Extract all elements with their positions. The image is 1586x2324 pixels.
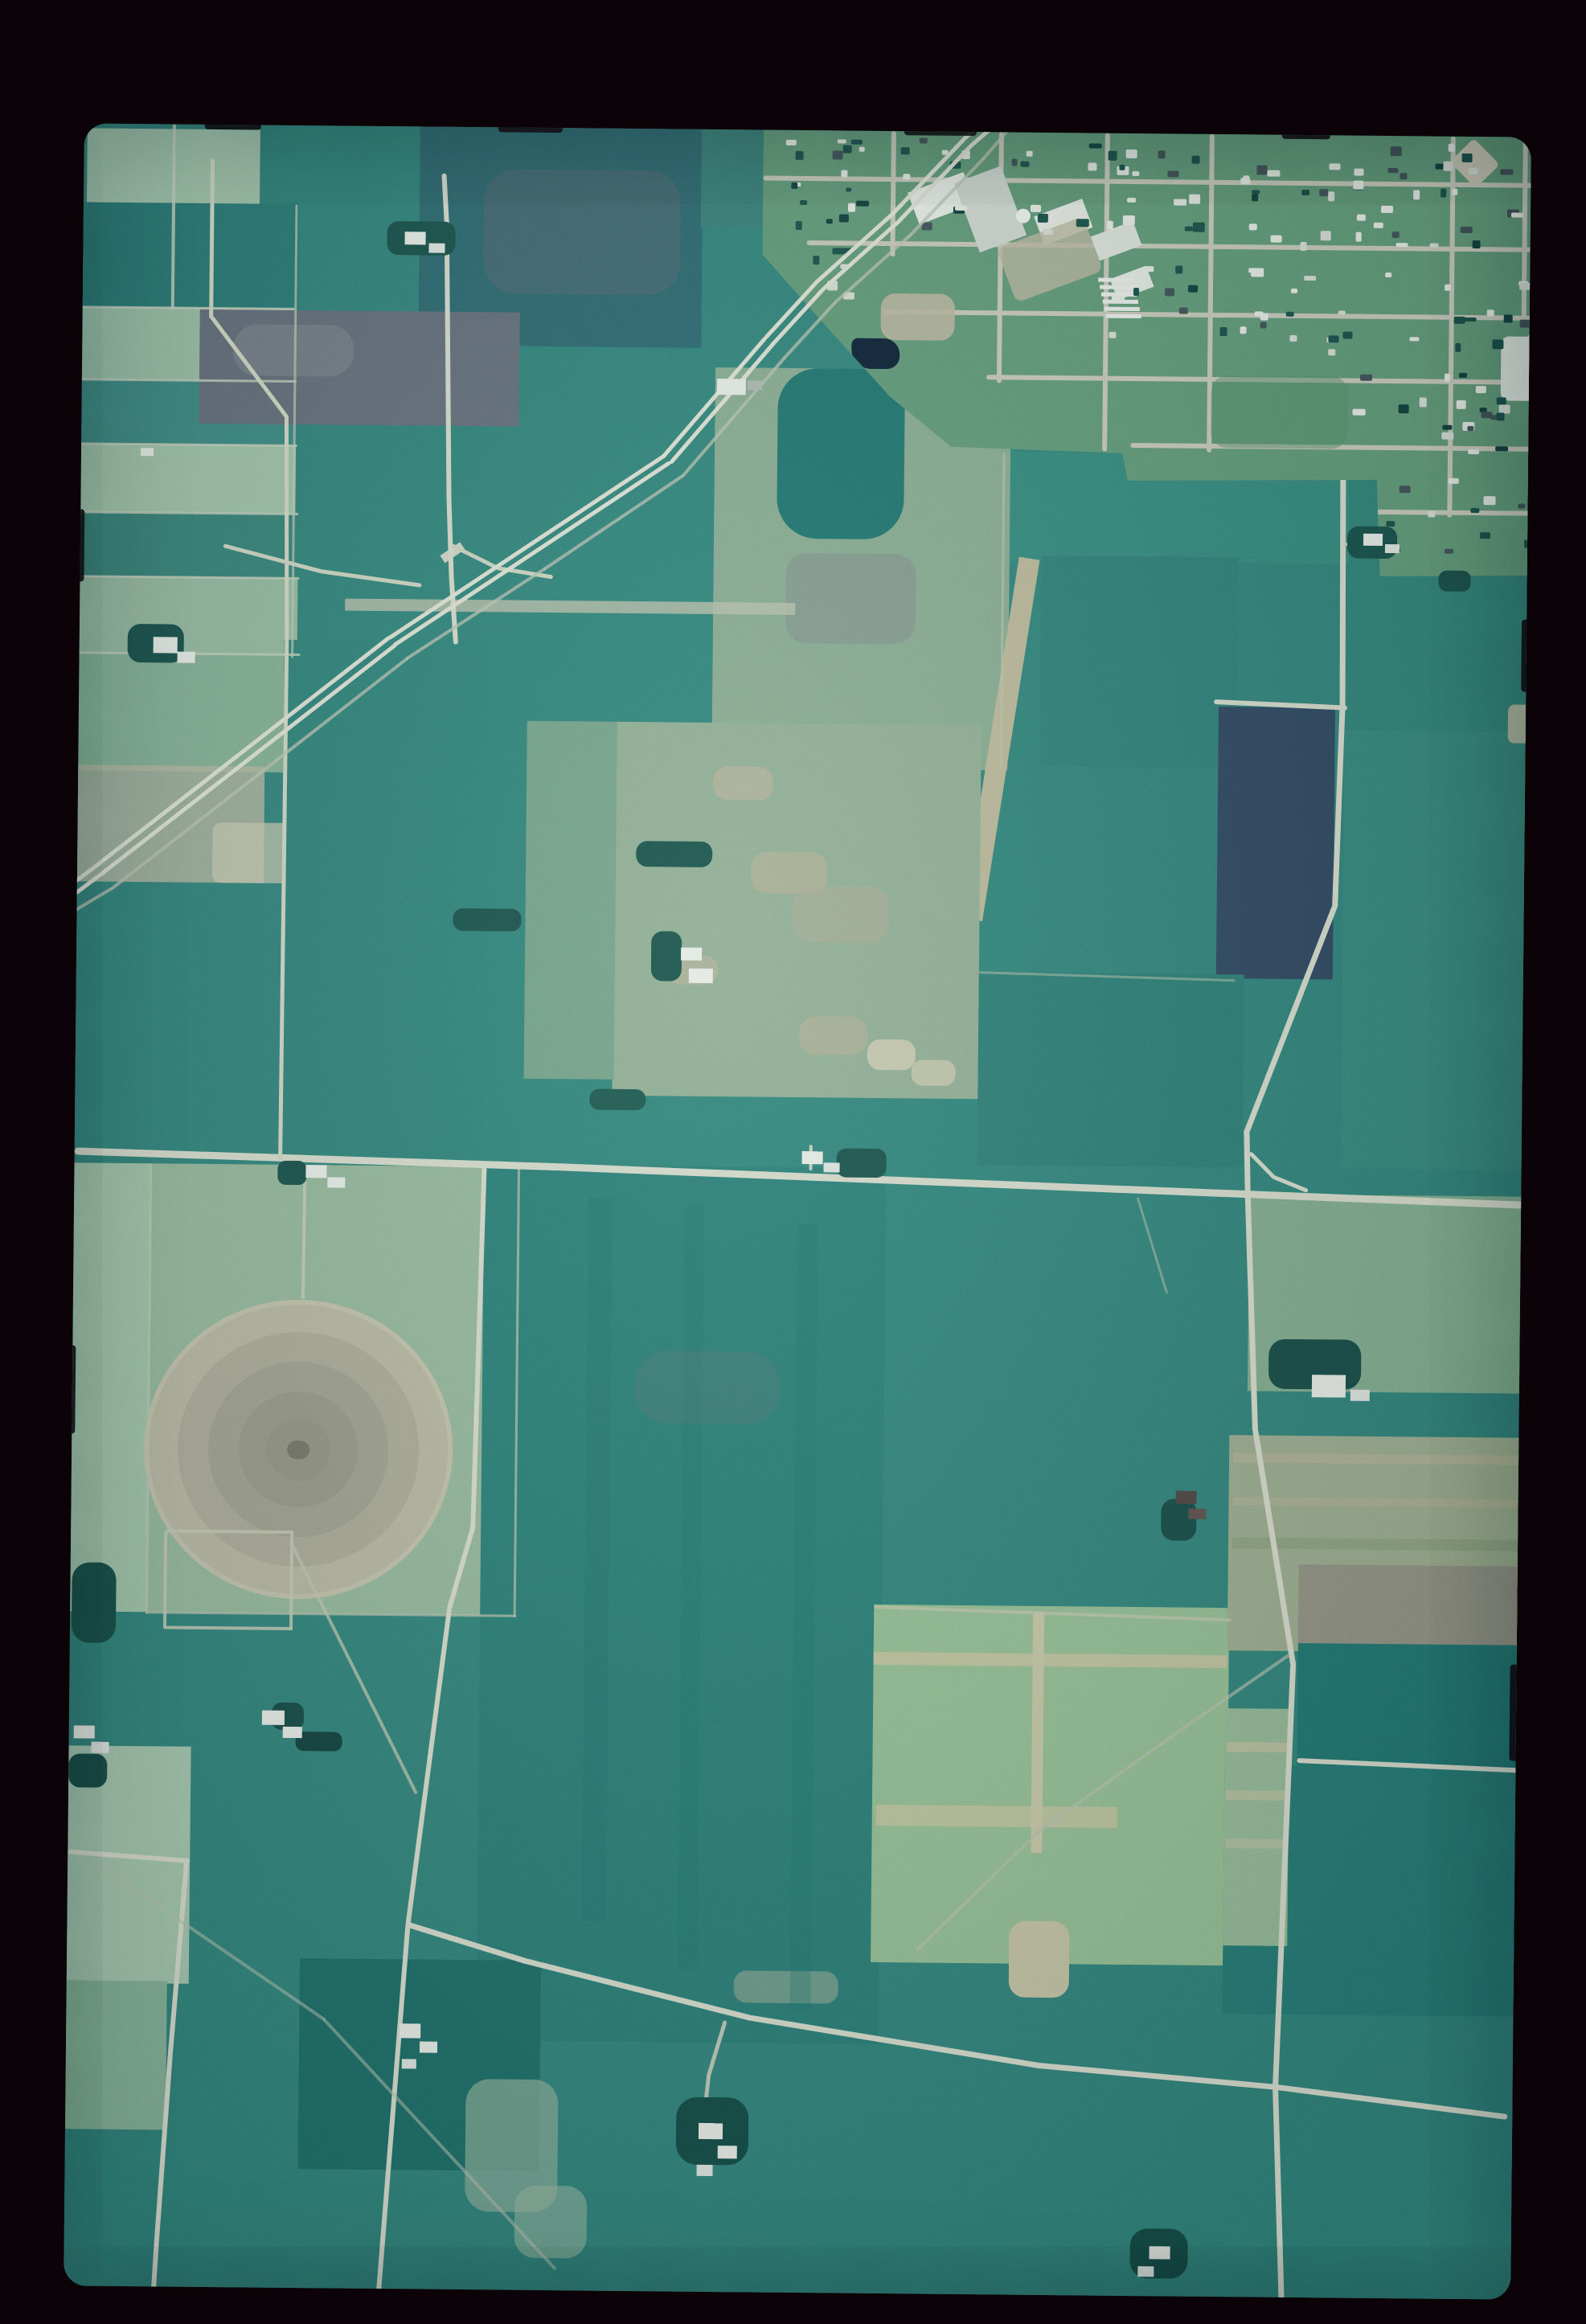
field-teal-dark-se [1297, 1643, 1531, 1768]
farm-building [178, 652, 195, 663]
town-house [920, 138, 928, 144]
trailer-row [1100, 285, 1135, 289]
town-house [1392, 232, 1399, 238]
tan-strip-e [1227, 1742, 1289, 1752]
town-house [838, 214, 849, 222]
town-house [1328, 336, 1338, 343]
town-house [1319, 189, 1328, 197]
town-house [1012, 159, 1018, 166]
town-house [1286, 312, 1294, 317]
tan-patch [713, 766, 773, 801]
paved-lot-east [1501, 336, 1531, 401]
faint-track [1137, 1197, 1168, 1293]
town-house [786, 139, 796, 146]
town-house [1531, 512, 1531, 518]
town-street [807, 240, 1531, 252]
mottle-purple [634, 1351, 780, 1424]
town-house [826, 219, 833, 224]
town-house [1452, 189, 1458, 195]
town-house [796, 151, 803, 161]
town-house [1291, 289, 1297, 293]
farm-building [262, 1711, 285, 1725]
dark-spill [296, 1732, 342, 1752]
town-house [1443, 425, 1452, 430]
tan-ground [880, 293, 955, 341]
farm-building [405, 232, 426, 244]
edge-nick [1509, 1665, 1518, 1761]
farm-building [689, 969, 713, 983]
field-pasture-w [524, 721, 617, 1080]
town-house [1158, 150, 1166, 158]
town-house [1480, 532, 1490, 539]
town-house [1255, 312, 1264, 317]
town-house [1167, 171, 1178, 177]
town-house [859, 146, 865, 151]
mottle-tan [734, 1970, 838, 2003]
field-brown-dark-se [1298, 1564, 1531, 1647]
farm-building [681, 948, 702, 961]
town-house [1248, 223, 1256, 231]
town-house [1501, 169, 1514, 174]
farm-building [1350, 1390, 1370, 1401]
aerial-photo [64, 123, 1531, 2299]
farm-building [1176, 1491, 1197, 1504]
edge-nick [498, 123, 563, 133]
tan-strip-e [1226, 1790, 1289, 1801]
town-house [1302, 189, 1310, 195]
tree-cluster [636, 841, 712, 867]
road-ramp-junction [1248, 1151, 1277, 1180]
farm-building [305, 1165, 326, 1178]
town-house [1174, 199, 1186, 206]
town-house [901, 147, 909, 154]
mottle-pale [514, 2186, 587, 2259]
trailer-row [1106, 314, 1141, 318]
farm-building [748, 380, 762, 390]
town-house [1461, 154, 1472, 162]
town-house [1420, 397, 1427, 407]
divided-highway [530, 461, 671, 556]
road-ns-nw [285, 416, 289, 642]
town-house [1133, 288, 1140, 296]
town-house [1448, 144, 1455, 152]
field-se-bottom [1268, 2087, 1531, 2300]
town-house [1441, 188, 1447, 198]
town-house [1356, 232, 1362, 241]
farm-building [420, 2042, 437, 2053]
town-house [1020, 161, 1029, 166]
field-purple-ne [785, 553, 916, 645]
town-house [1400, 173, 1408, 179]
farm-building [717, 379, 746, 395]
trailer-row [1098, 278, 1133, 282]
farm-building [699, 2123, 723, 2139]
ramp-arc-b [321, 569, 421, 588]
town-house [1529, 334, 1531, 338]
tan-track-vert [1031, 1612, 1044, 1853]
town-house [1413, 191, 1420, 200]
town-house [1487, 309, 1494, 316]
town-house [1511, 212, 1523, 217]
town-house [1132, 171, 1140, 176]
tan-blob-bottom [1009, 1921, 1070, 1998]
town-house [1353, 408, 1366, 415]
field-sage-w [78, 652, 302, 775]
farm-building [823, 1162, 839, 1172]
town-house [1043, 229, 1053, 236]
tree-cluster [651, 931, 682, 981]
town-house [1495, 447, 1508, 452]
town-house [1471, 508, 1480, 513]
irrigation-circle-center [287, 1441, 309, 1459]
town-house [1244, 176, 1249, 182]
town-house [1519, 319, 1530, 327]
town-house [1360, 375, 1372, 381]
town-house [1445, 373, 1450, 382]
tree-cluster [453, 908, 521, 932]
town-house [1499, 404, 1510, 413]
town-house [1518, 504, 1526, 509]
town-house [1443, 162, 1453, 171]
pond-trees-w [72, 1562, 117, 1643]
farm-building [141, 448, 154, 456]
industrial-roof [1091, 221, 1142, 261]
town-house [1122, 215, 1135, 225]
farm-building [154, 637, 178, 653]
town-house [1497, 413, 1504, 421]
field-strip-sage-2 [80, 443, 296, 515]
tree-cluster [589, 1089, 645, 1111]
town-house [1459, 373, 1467, 378]
field-strip-teal-2 [80, 511, 297, 580]
town-house [1031, 205, 1041, 213]
town-house [1328, 191, 1334, 201]
road-ns-east [1244, 1131, 1250, 1197]
town-house [903, 174, 910, 179]
town-house [1460, 227, 1473, 233]
town-house [1109, 151, 1117, 161]
silo [1016, 209, 1031, 223]
farm-building [402, 2059, 416, 2068]
town-street [1522, 137, 1528, 326]
town-house [1240, 326, 1247, 334]
town-house [1027, 151, 1033, 158]
town-house [1457, 400, 1465, 409]
town-house [1493, 340, 1503, 350]
farm-building [1312, 1375, 1346, 1397]
road-bl-ns [151, 2243, 159, 2291]
town-house [1252, 190, 1260, 194]
town-house [1252, 195, 1258, 201]
tree-cluster [1438, 571, 1470, 592]
town-house [848, 203, 856, 212]
town-house [1410, 337, 1420, 341]
town-house [1145, 266, 1154, 272]
farm-building [327, 1177, 345, 1187]
field-box [163, 1531, 167, 1629]
town-house [1524, 539, 1531, 547]
town-house [1467, 426, 1474, 431]
town-house [1179, 308, 1188, 314]
town-house [833, 151, 843, 159]
field-sage-bl-2 [65, 1980, 167, 2129]
town-house [1321, 231, 1331, 240]
town-house [1189, 195, 1200, 203]
town-house [1260, 322, 1267, 329]
edge-nick [1521, 620, 1530, 692]
farm-building [1385, 544, 1400, 553]
town-house [1400, 486, 1411, 494]
farm-building [696, 2165, 712, 2176]
town-house [813, 256, 820, 264]
town-house [1449, 478, 1459, 483]
town-house [850, 140, 862, 145]
town-house [1127, 198, 1137, 203]
field-sage-of-plot [70, 1162, 152, 1612]
town-house [1465, 318, 1477, 322]
town-house [1219, 327, 1227, 336]
town-house [842, 145, 851, 153]
town-house [1497, 397, 1506, 404]
town-house [1374, 223, 1383, 227]
town-street [763, 176, 1531, 188]
tan-strip [876, 1805, 1117, 1828]
town-house [1328, 349, 1335, 356]
road-ns-center [405, 1607, 452, 1928]
divided-highway [770, 288, 825, 347]
field-east-1 [1039, 555, 1239, 768]
town-house [1088, 162, 1096, 170]
edge-nick [1282, 133, 1330, 140]
town-house [1428, 511, 1435, 518]
field-dark-navy [1216, 707, 1335, 979]
town-house [1484, 496, 1495, 505]
town-house [955, 206, 967, 210]
town-house [1398, 404, 1408, 413]
tree-cluster [836, 1148, 886, 1178]
field-box [165, 1625, 293, 1630]
farm-building [283, 1727, 302, 1738]
town-house [1454, 317, 1465, 325]
town-house [1038, 214, 1048, 222]
town-house [1430, 244, 1438, 248]
town-house [1304, 276, 1316, 281]
tan-yard [792, 886, 889, 943]
field-east-3 [1341, 731, 1531, 1170]
farm-building [428, 244, 445, 253]
town-house [1175, 265, 1183, 273]
farm-building [1363, 534, 1383, 546]
farm-building [718, 2146, 737, 2158]
town-house [1252, 268, 1264, 277]
town-house [1445, 549, 1453, 554]
slide-mount-background [0, 0, 1586, 2324]
cream-patch [867, 1039, 916, 1071]
town-house [1109, 332, 1117, 338]
tan-strip-e [1225, 1838, 1288, 1849]
farm-building [74, 1725, 95, 1738]
town-house [1271, 236, 1282, 243]
field-teal-band-nw [83, 202, 299, 313]
town-house [1353, 180, 1363, 190]
town-house [1119, 165, 1125, 171]
field-strip-sage-3 [80, 576, 298, 656]
town-house [1165, 288, 1174, 296]
town-house [1192, 156, 1200, 164]
town-house [1455, 343, 1461, 352]
cream-patch [912, 1060, 956, 1086]
town-house [791, 182, 797, 189]
town-house [856, 201, 869, 207]
town-house [1354, 169, 1363, 175]
field-purple-cloud [483, 169, 681, 295]
ball-field [1449, 138, 1499, 188]
town-house [1257, 166, 1268, 174]
road-ramp-junction [1272, 1174, 1309, 1192]
field-mid-e [977, 972, 1244, 1167]
farm-building [802, 1151, 823, 1164]
road-lower-slant [1039, 2062, 1280, 2089]
town-house [1126, 150, 1137, 158]
road-ns-b [446, 498, 453, 580]
farm-building [1188, 1509, 1206, 1519]
town-house [1520, 282, 1531, 289]
farm-building [1150, 2246, 1170, 2259]
town-house [1267, 170, 1280, 177]
town-house [1475, 386, 1486, 393]
farm-building [400, 2023, 420, 2038]
town-house [1338, 311, 1346, 315]
town-house [1076, 219, 1088, 227]
town-house [1185, 226, 1192, 231]
trailer-row [1104, 307, 1140, 311]
tree-cluster [68, 1753, 107, 1787]
town-house [1380, 206, 1392, 213]
town-street [890, 131, 895, 256]
town-house [1445, 285, 1451, 291]
edge-nick [205, 123, 261, 129]
farm-building [1137, 2266, 1154, 2277]
tree-cluster [277, 1161, 306, 1185]
town-house [1342, 332, 1352, 339]
tan-patch [799, 1016, 867, 1055]
tree-cluster [1161, 1498, 1196, 1540]
road-ns-east [1340, 463, 1346, 709]
tree-block [1211, 375, 1348, 449]
field-tan-edge-e [1508, 704, 1531, 743]
edge-nick [76, 509, 84, 581]
town-house [1473, 240, 1481, 248]
town-house [1387, 168, 1399, 173]
edge-nick [904, 128, 977, 136]
town-house [796, 221, 802, 229]
town-house [1504, 314, 1513, 323]
farm-building [91, 1742, 109, 1753]
field-mid-n [280, 640, 490, 1160]
town-house [1330, 163, 1341, 170]
sewage-lagoon-pond [851, 338, 900, 370]
town-house [1468, 449, 1479, 454]
town-house [1089, 143, 1102, 148]
town-house [1107, 220, 1113, 230]
town-house [1469, 168, 1478, 175]
town-house [1112, 295, 1125, 303]
town-house [838, 139, 846, 144]
town-house [1356, 215, 1366, 221]
town-house [1289, 335, 1297, 342]
town-house [842, 170, 848, 178]
town-house [1192, 223, 1204, 232]
town-house [1188, 285, 1197, 292]
town-house [846, 187, 851, 192]
town-house [1396, 243, 1408, 247]
edge-nick [68, 1345, 76, 1433]
town-house [1386, 273, 1392, 277]
town-house [1391, 146, 1402, 156]
town-street [883, 309, 1531, 321]
town-house [1481, 412, 1493, 419]
town-house [1441, 432, 1453, 440]
town-house [1300, 242, 1307, 251]
field-dark-blob-ne [777, 368, 905, 540]
town-house [800, 200, 806, 206]
